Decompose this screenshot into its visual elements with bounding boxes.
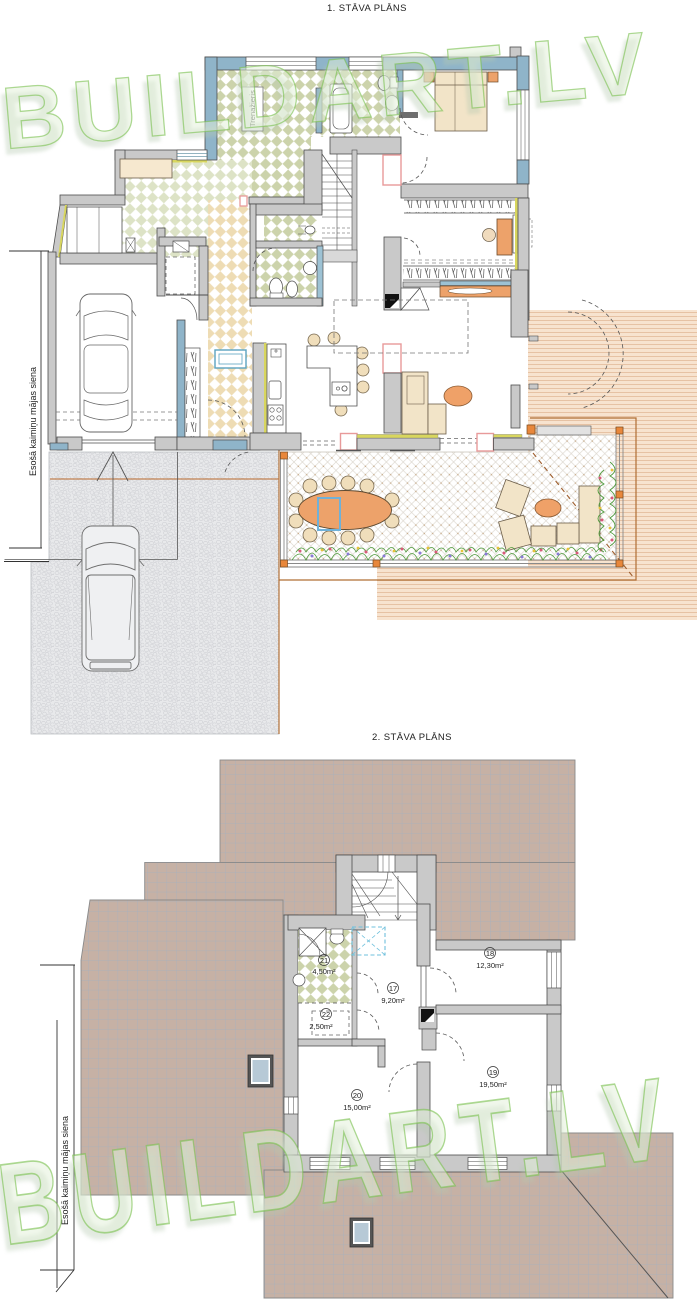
svg-text:17: 17 <box>389 984 397 993</box>
svg-text:21: 21 <box>320 956 328 965</box>
svg-text:1. STĀVA PLĀNS: 1. STĀVA PLĀNS <box>327 3 407 14</box>
svg-text:22: 22 <box>322 1010 330 1019</box>
svg-text:Esošā kaimiņu mājas siena: Esošā kaimiņu mājas siena <box>28 367 38 476</box>
svg-text:18: 18 <box>486 949 494 958</box>
svg-text:4,50m²: 4,50m² <box>312 967 336 976</box>
svg-text:2,50m²: 2,50m² <box>309 1022 333 1031</box>
svg-text:12,30m²: 12,30m² <box>476 961 504 970</box>
svg-text:9,20m²: 9,20m² <box>381 996 405 1005</box>
svg-text:2. STĀVA PLĀNS: 2. STĀVA PLĀNS <box>372 732 452 743</box>
